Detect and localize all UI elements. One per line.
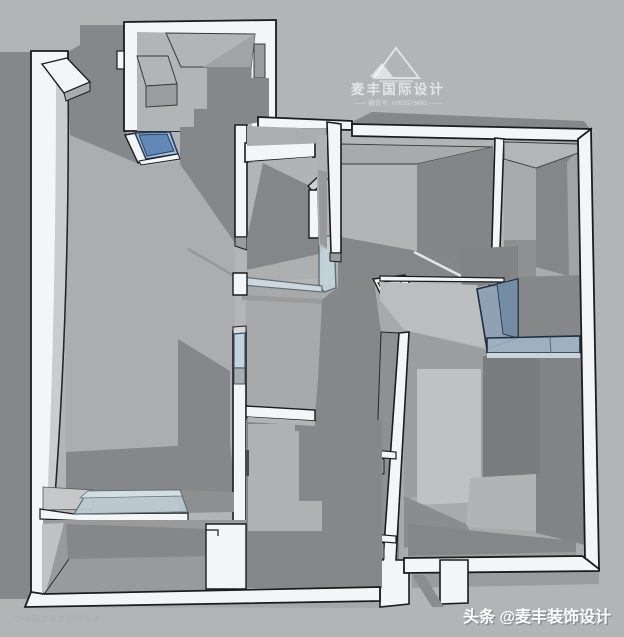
svg-text:头条 @麦丰装饰设计: 头条 @麦丰装饰设计	[463, 607, 611, 626]
svg-text:麦丰国际设计: 麦丰国际设计	[351, 81, 445, 97]
svg-text:IT·小陶@麦丰装饰设计: IT·小陶@麦丰装饰设计	[13, 614, 101, 624]
svg-text:—— 薇信号: mf63376661 ——: —— 薇信号: mf63376661 ——	[354, 98, 443, 107]
